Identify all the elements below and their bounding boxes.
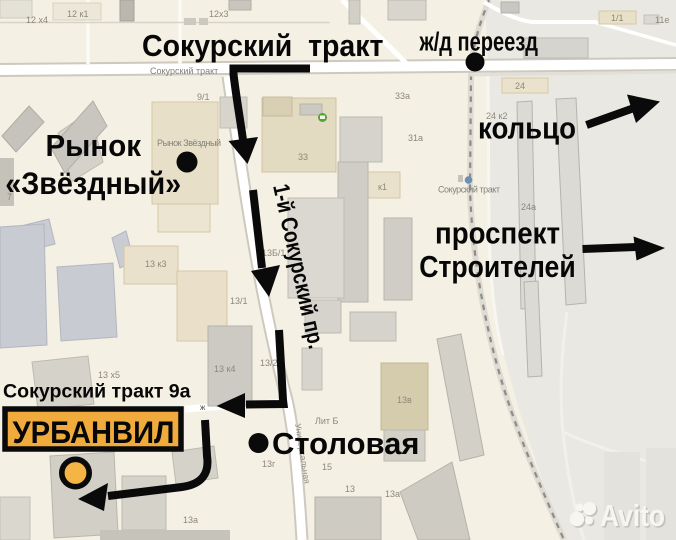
svg-text:12 х4: 12 х4 [26,15,48,25]
svg-text:13/2: 13/2 [260,358,278,368]
svg-text:13в: 13в [397,395,412,405]
svg-text:Avito: Avito [600,498,665,533]
svg-text:Сокурский тракт: Сокурский тракт [438,185,500,195]
svg-text:13/1: 13/1 [230,296,248,306]
svg-text:Сокурский тракт: Сокурский тракт [150,66,218,76]
svg-text:УРБАНВИЛ: УРБАНВИЛ [13,414,175,450]
svg-text:15: 15 [322,462,332,472]
svg-text:9/1: 9/1 [197,92,210,102]
svg-text:24а: 24а [521,202,536,212]
svg-text:1/1: 1/1 [611,13,624,23]
svg-text:13 к3: 13 к3 [145,259,166,269]
svg-text:13 к4: 13 к4 [214,364,235,374]
svg-text:33а: 33а [395,91,410,101]
svg-text:13Б/1: 13Б/1 [262,248,285,258]
svg-text:«Звёздный»: «Звёздный» [5,165,181,201]
svg-text:ж: ж [200,403,206,412]
svg-text:13 х5: 13 х5 [98,370,120,380]
svg-text:Столовая: Столовая [272,426,420,461]
svg-text:Рынок: Рынок [46,128,142,163]
svg-text:Рынок Звёздный: Рынок Звёздный [157,138,221,148]
svg-text:33: 33 [298,152,308,162]
svg-text:13а: 13а [385,489,400,499]
svg-text:11е: 11е [655,15,669,25]
svg-text:ж/д переезд: ж/д переезд [419,29,538,57]
svg-text:Лит Б: Лит Б [315,416,339,426]
svg-text:к1: к1 [378,182,387,192]
svg-text:12 к1: 12 к1 [67,9,88,19]
svg-text:24: 24 [515,81,525,91]
svg-text:13: 13 [345,484,355,494]
svg-text:проспект: проспект [435,217,560,251]
svg-text:кольцо: кольцо [478,111,576,145]
svg-text:Сокурский тракт: Сокурский тракт [142,28,384,63]
svg-text:Строителей: Строителей [419,250,576,284]
svg-text:13а: 13а [183,515,198,525]
svg-text:Сокурский тракт 9а: Сокурский тракт 9а [3,380,192,402]
svg-text:31а: 31а [408,133,423,143]
svg-text:12х3: 12х3 [209,9,229,19]
